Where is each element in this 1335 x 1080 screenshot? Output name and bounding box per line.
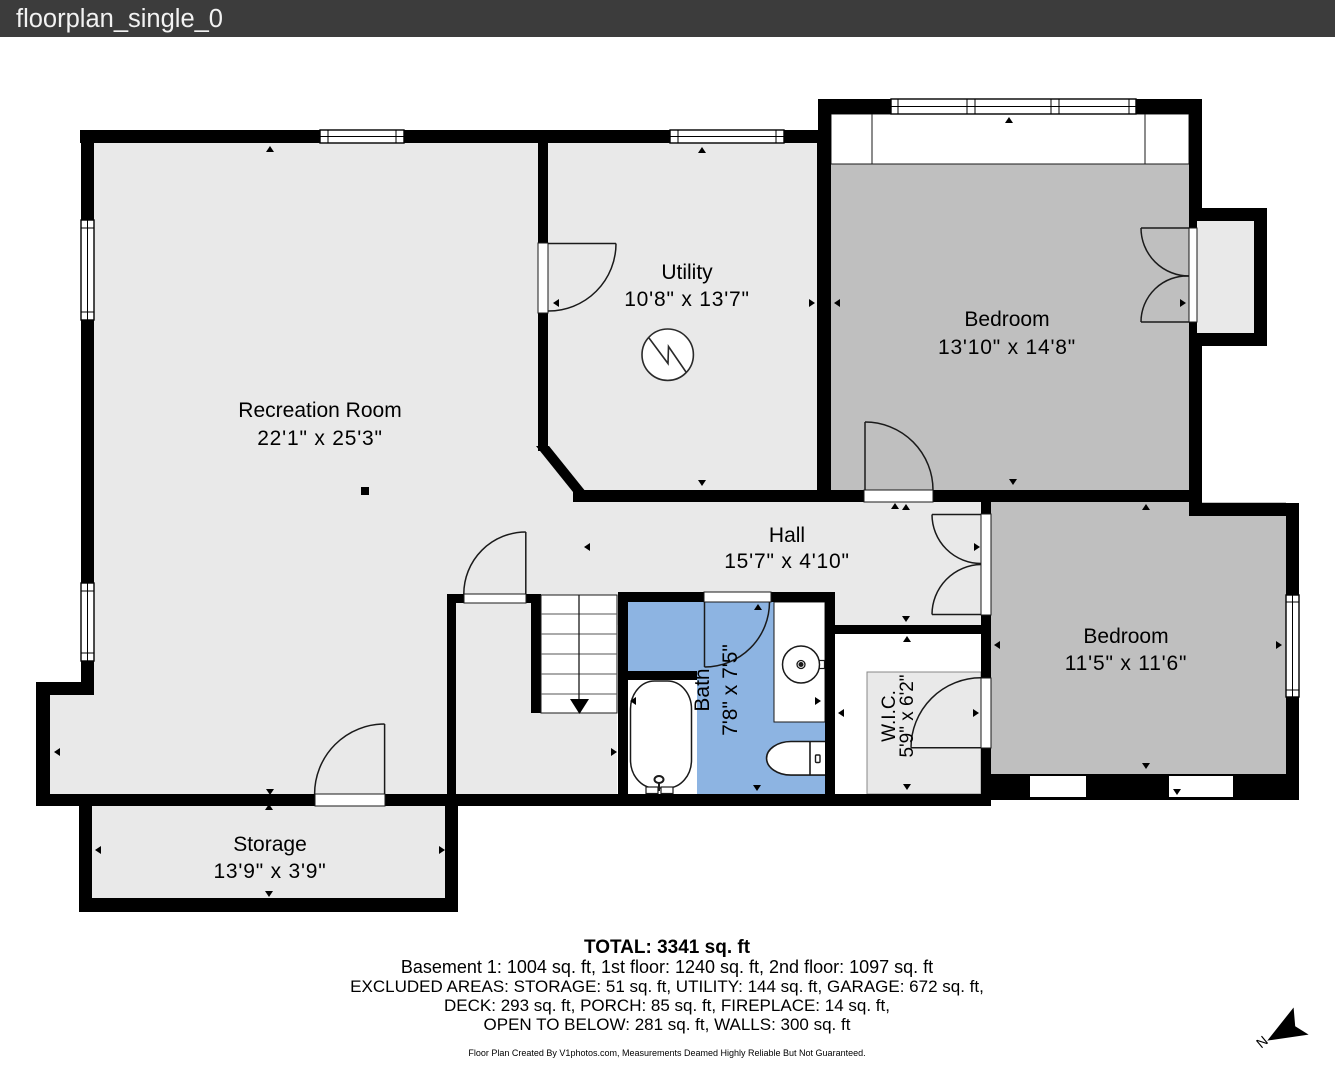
svg-text:7'8" x 7'5": 7'8" x 7'5" xyxy=(719,644,742,736)
svg-text:13'10" x 14'8": 13'10" x 14'8" xyxy=(938,336,1076,359)
svg-text:Storage: Storage xyxy=(233,833,307,856)
svg-text:Bath: Bath xyxy=(691,668,714,711)
svg-text:Hall: Hall xyxy=(769,524,805,547)
svg-text:Recreation Room: Recreation Room xyxy=(238,399,401,422)
svg-text:Bedroom: Bedroom xyxy=(1083,625,1168,648)
svg-text:DECK: 293 sq. ft, PORCH: 85 sq: DECK: 293 sq. ft, PORCH: 85 sq. ft, FIRE… xyxy=(444,996,890,1015)
svg-text:Basement 1: 1004 sq. ft, 1st f: Basement 1: 1004 sq. ft, 1st floor: 1240… xyxy=(401,957,933,977)
svg-text:11'5" x 11'6": 11'5" x 11'6" xyxy=(1065,652,1187,675)
svg-text:OPEN TO BELOW: 281 sq. ft, WAL: OPEN TO BELOW: 281 sq. ft, WALLS: 300 sq… xyxy=(484,1015,851,1034)
svg-text:Utility: Utility xyxy=(661,261,713,284)
svg-text:TOTAL: 3341 sq. ft: TOTAL: 3341 sq. ft xyxy=(584,937,751,958)
svg-text:Bedroom: Bedroom xyxy=(964,308,1049,331)
svg-text:13'9" x 3'9": 13'9" x 3'9" xyxy=(213,860,326,883)
svg-text:5'9" x 6'2": 5'9" x 6'2" xyxy=(897,674,918,757)
svg-text:floorplan_single_0: floorplan_single_0 xyxy=(16,5,223,33)
svg-text:Floor Plan Created By V1photos: Floor Plan Created By V1photos.com, Meas… xyxy=(468,1048,865,1058)
svg-text:10'8" x 13'7": 10'8" x 13'7" xyxy=(624,288,750,311)
svg-text:22'1" x 25'3": 22'1" x 25'3" xyxy=(257,427,383,450)
svg-text:EXCLUDED AREAS: STORAGE: 51 sq: EXCLUDED AREAS: STORAGE: 51 sq. ft, UTIL… xyxy=(350,977,984,996)
svg-text:15'7" x 4'10": 15'7" x 4'10" xyxy=(724,550,850,573)
